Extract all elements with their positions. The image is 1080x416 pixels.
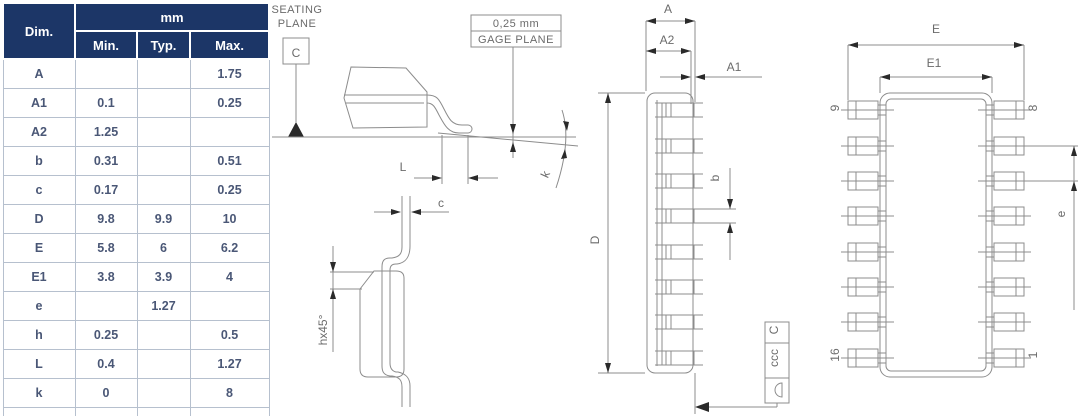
frame-tolerance-label: ccc bbox=[767, 349, 781, 367]
dim-D-label: D bbox=[588, 235, 602, 244]
dim-E-label: E bbox=[932, 22, 940, 36]
dim-A2-label: A2 bbox=[660, 33, 675, 47]
dim-b-label: b bbox=[708, 174, 722, 181]
dim-chamfer-label: hx45° bbox=[316, 314, 330, 345]
pin-9-label: 9 bbox=[828, 104, 842, 111]
package-drawings: SEATING PLANE C L bbox=[0, 0, 1080, 416]
top-view-drawing: E E1 bbox=[828, 22, 1078, 377]
seating-datum-triangle bbox=[695, 402, 709, 412]
pin-16-label: 16 bbox=[828, 348, 842, 362]
foot-angle-line bbox=[438, 133, 578, 146]
dim-E1-label: E1 bbox=[927, 56, 942, 70]
dim-k-label: k bbox=[538, 168, 554, 180]
datum-triangle bbox=[288, 122, 304, 137]
flatness-symbol-icon bbox=[775, 383, 782, 397]
end-view-drawing: c hx45° bbox=[316, 196, 449, 407]
seating-plane-label-line2: PLANE bbox=[278, 18, 317, 30]
dim-e-label: e bbox=[1054, 210, 1068, 217]
gage-plane-label: GAGE PLANE bbox=[478, 34, 554, 46]
flatness-control-frame: C ccc bbox=[765, 322, 789, 403]
body-side-outline bbox=[647, 93, 693, 373]
dim-A-label: A bbox=[664, 2, 672, 16]
dim-A1-label: A1 bbox=[727, 60, 742, 74]
dim-L-label: L bbox=[400, 160, 407, 174]
package-mechanical-data-page: Dim. mm Min. Typ. Max. A1.75 A10.10.25 A… bbox=[0, 0, 1080, 416]
pin-8-label: 8 bbox=[1026, 104, 1040, 111]
datum-c-label: C bbox=[292, 46, 301, 60]
dim-c-label: c bbox=[438, 196, 444, 210]
seating-plane-label-line1: SEATING bbox=[272, 4, 323, 16]
gage-plane-value: 0,25 mm bbox=[493, 18, 539, 30]
side-view-drawing: A A2 A1 bbox=[588, 2, 789, 414]
frame-datum-label: C bbox=[767, 325, 781, 334]
body-top-outline bbox=[880, 93, 992, 377]
pin-1-label: 1 bbox=[1026, 351, 1040, 358]
lead-profile-drawing: L k bbox=[344, 67, 569, 188]
